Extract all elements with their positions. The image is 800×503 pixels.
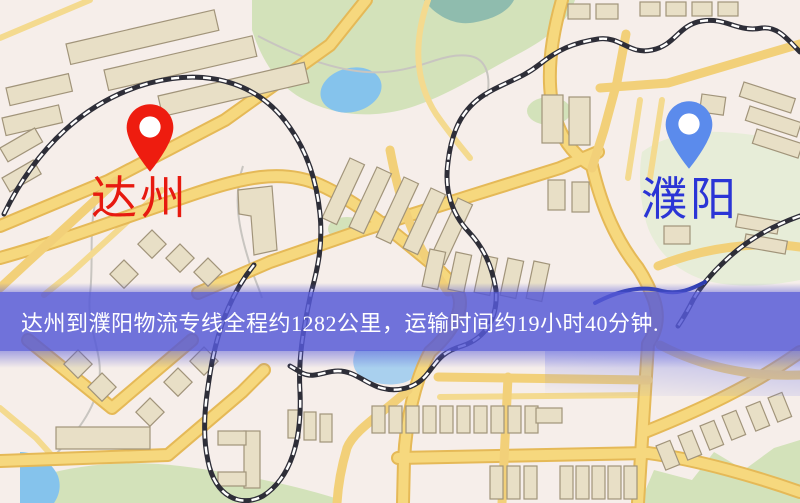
banner-wash-right xyxy=(545,351,800,396)
destination-city-label: 濮阳 xyxy=(641,177,739,223)
origin-pin-icon[interactable] xyxy=(124,103,176,173)
route-info-text: 达州到濮阳物流专线全程约1282公里，运输时间约19小时40分钟. xyxy=(0,306,659,338)
route-info-banner: 达州到濮阳物流专线全程约1282公里，运输时间约19小时40分钟. xyxy=(0,292,800,351)
banner-fade-top xyxy=(0,283,800,292)
location-pin-glyph xyxy=(663,100,715,170)
map-background xyxy=(0,0,800,503)
destination-pin-icon[interactable] xyxy=(663,100,715,170)
origin-city-label: 达州 xyxy=(91,176,189,222)
location-pin-glyph xyxy=(124,103,176,173)
map-view: 达州 濮阳 达州到濮阳物流专线全程约1282公里，运输时间约19小时40分钟. xyxy=(0,0,800,503)
